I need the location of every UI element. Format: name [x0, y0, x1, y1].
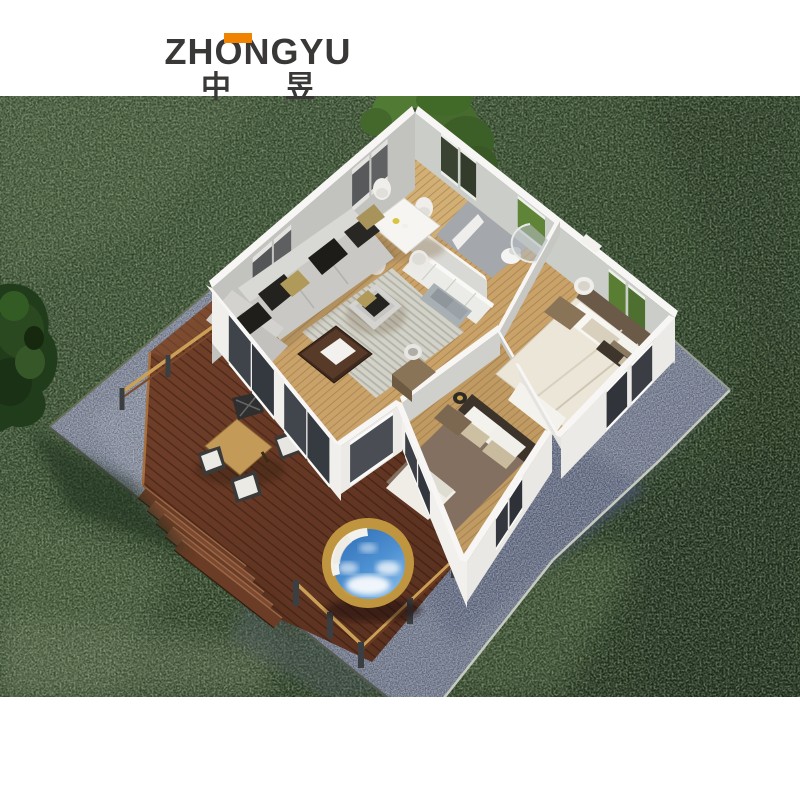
- svg-text:ZHONGYU: ZHONGYU: [165, 31, 352, 72]
- svg-text:中: 中: [201, 71, 231, 104]
- svg-text:昱: 昱: [285, 71, 315, 104]
